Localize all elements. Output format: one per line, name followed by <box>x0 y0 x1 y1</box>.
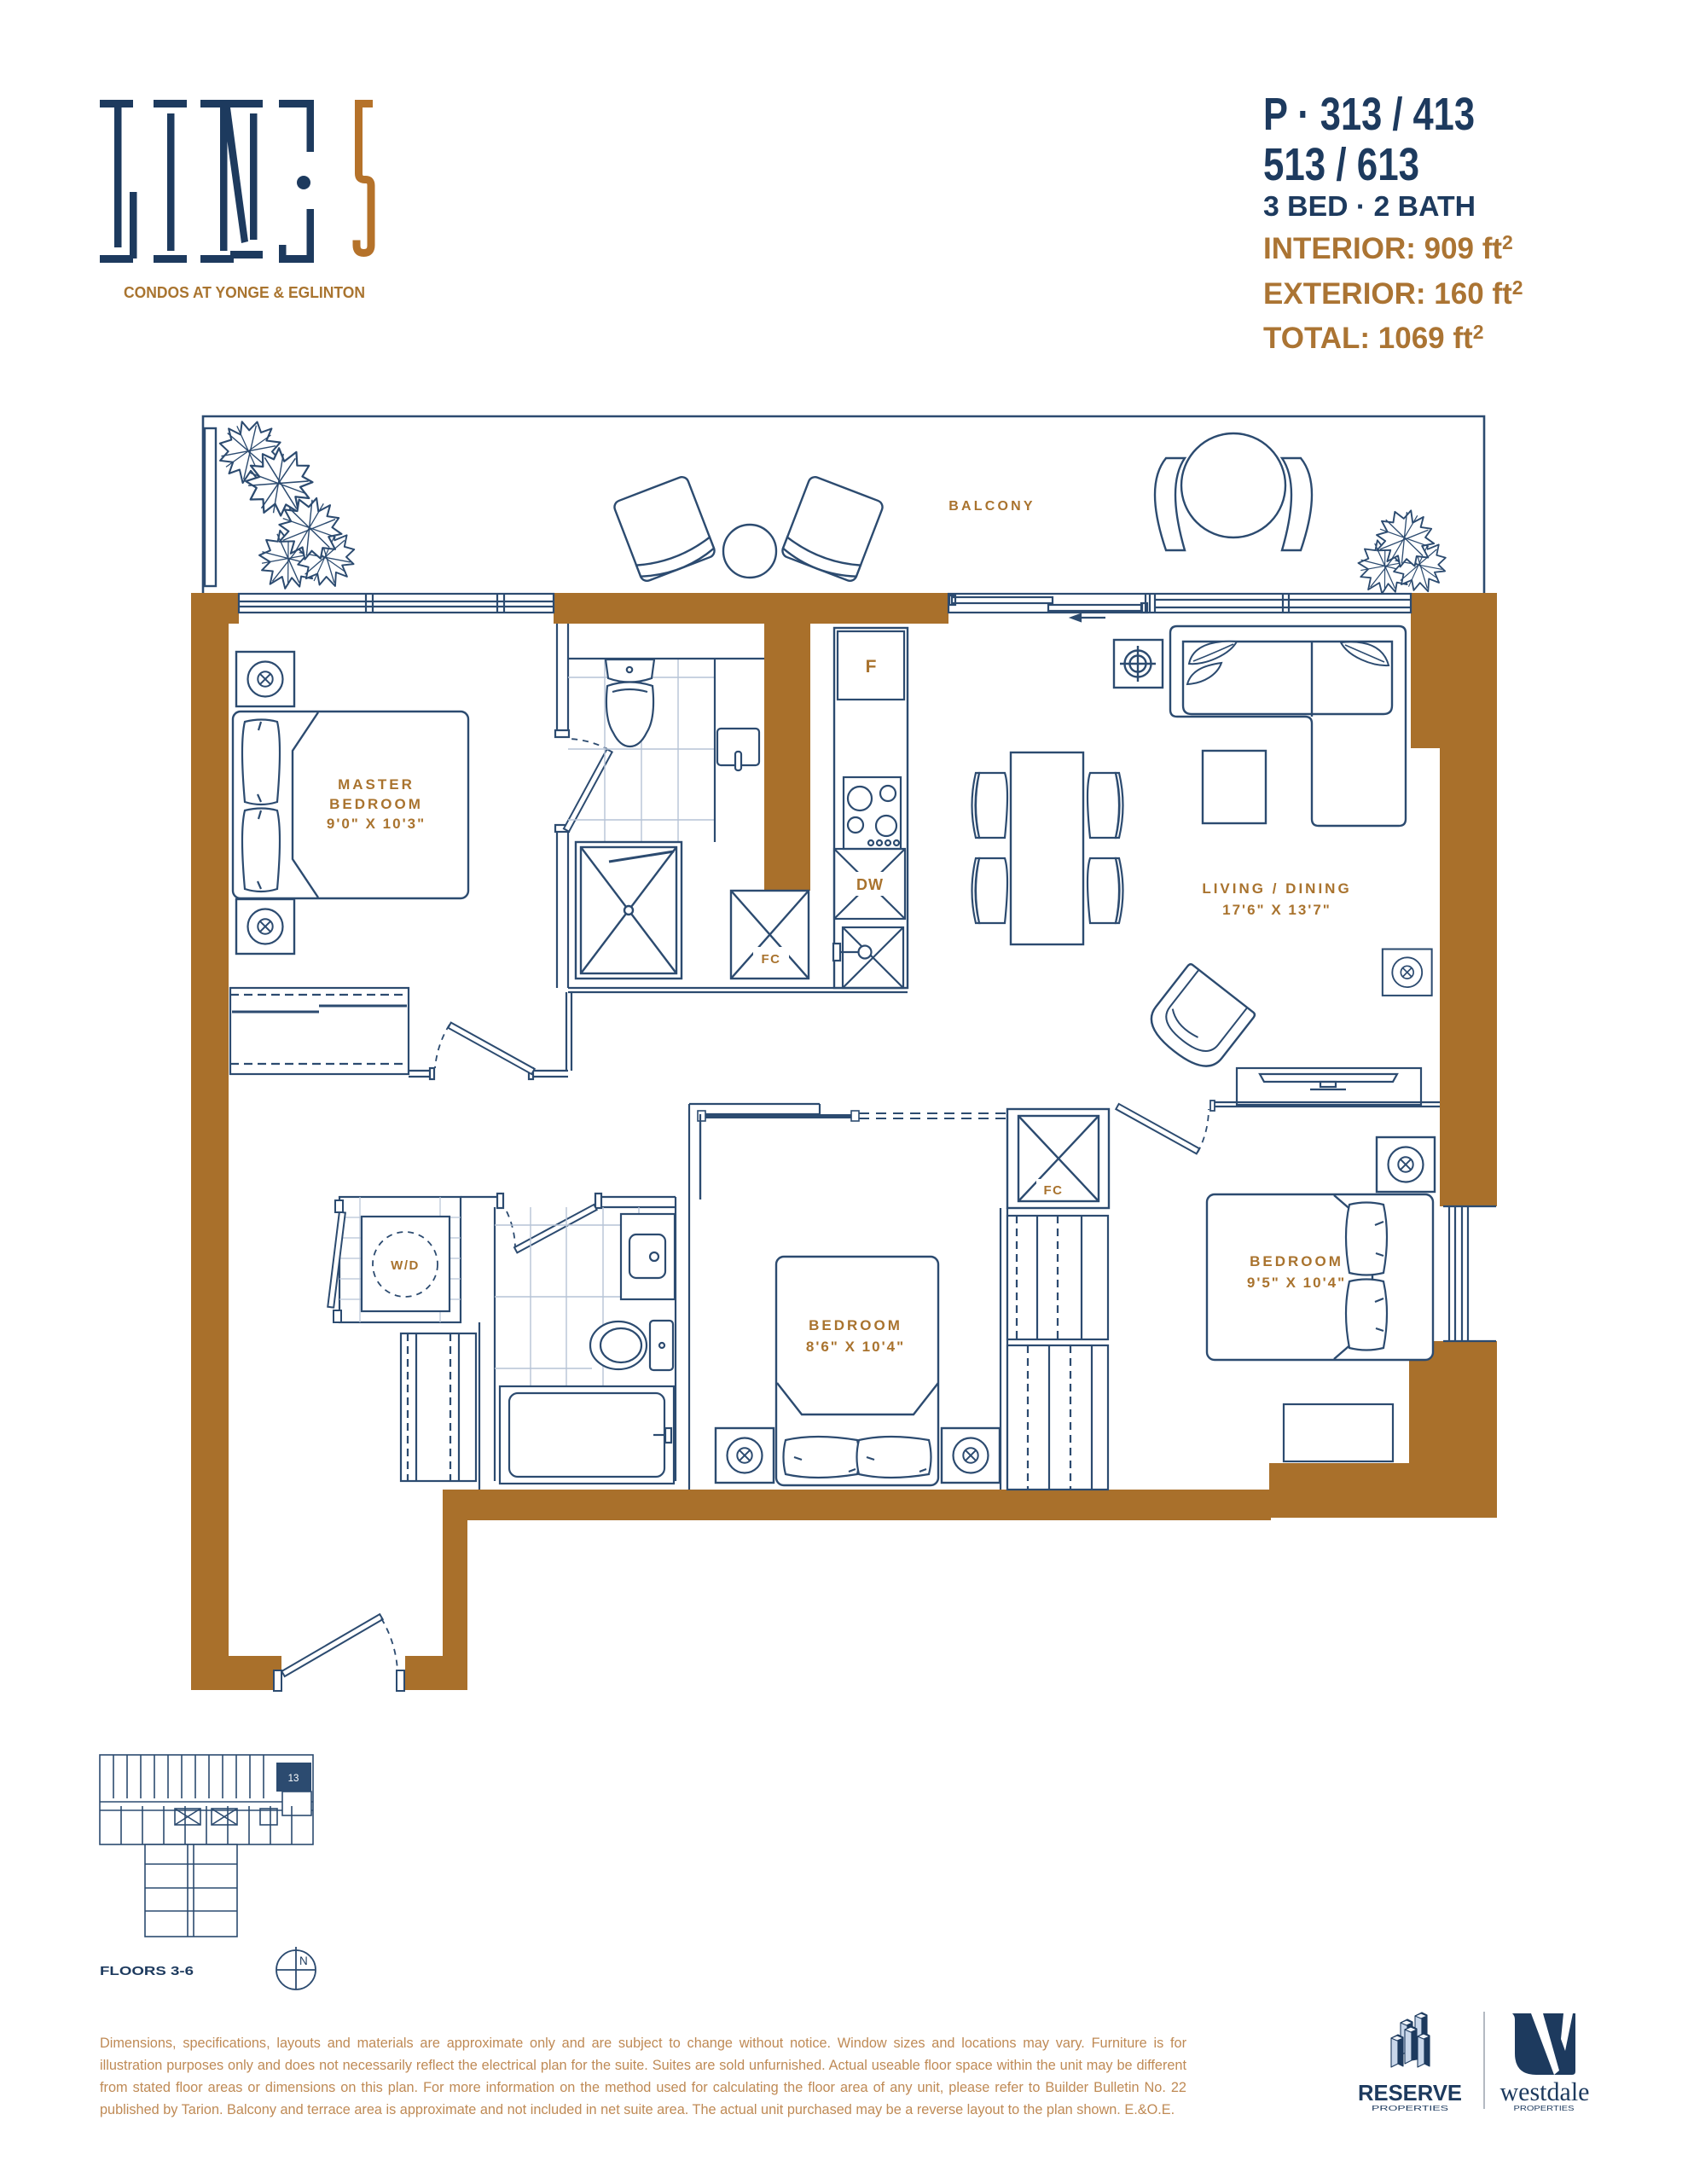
svg-text:EXTERIOR: 160 ft2: EXTERIOR: 160 ft2 <box>1263 276 1523 311</box>
svg-text:westdale: westdale <box>1500 2077 1590 2106</box>
svg-text:DW: DW <box>856 876 884 893</box>
svg-text:FC: FC <box>762 952 781 967</box>
svg-text:PROPERTIES: PROPERTIES <box>1514 2104 1575 2112</box>
svg-text:BEDROOM: BEDROOM <box>329 796 423 812</box>
svg-text:INTERIOR: 909 ft2: INTERIOR: 909 ft2 <box>1263 231 1513 265</box>
svg-text:CONDOS AT YONGE & EGLINTON: CONDOS AT YONGE & EGLINTON <box>124 284 365 301</box>
svg-text:BEDROOM: BEDROOM <box>809 1317 902 1333</box>
svg-text:BEDROOM: BEDROOM <box>1250 1253 1343 1269</box>
svg-text:F: F <box>866 657 877 677</box>
svg-text:MASTER: MASTER <box>338 776 415 793</box>
svg-text:9'5" X 10'4": 9'5" X 10'4" <box>1247 1275 1346 1291</box>
svg-text:W/D: W/D <box>391 1258 420 1273</box>
svg-text:BALCONY: BALCONY <box>948 499 1035 514</box>
svg-text:513 / 613: 513 / 613 <box>1263 139 1419 190</box>
svg-text:FC: FC <box>1044 1183 1064 1198</box>
svg-text:3 BED · 2 BATH: 3 BED · 2 BATH <box>1263 190 1476 222</box>
svg-text:TOTAL: 1069 ft2: TOTAL: 1069 ft2 <box>1263 321 1483 355</box>
svg-text:13: 13 <box>288 1774 299 1784</box>
svg-text:LIVING / DINING: LIVING / DINING <box>1202 880 1351 897</box>
svg-text:8'6" X 10'4": 8'6" X 10'4" <box>806 1339 905 1355</box>
svg-text:FLOORS 3-6: FLOORS 3-6 <box>100 1964 194 1978</box>
svg-text:9'0" X 10'3": 9'0" X 10'3" <box>327 816 426 832</box>
svg-text:PROPERTIES: PROPERTIES <box>1372 2104 1449 2112</box>
svg-text:N: N <box>299 1955 308 1967</box>
svg-text:17'6" X 13'7": 17'6" X 13'7" <box>1222 902 1331 918</box>
svg-text:P · 313 / 413: P · 313 / 413 <box>1263 89 1475 140</box>
svg-text:RESERVE: RESERVE <box>1358 2080 1462 2106</box>
